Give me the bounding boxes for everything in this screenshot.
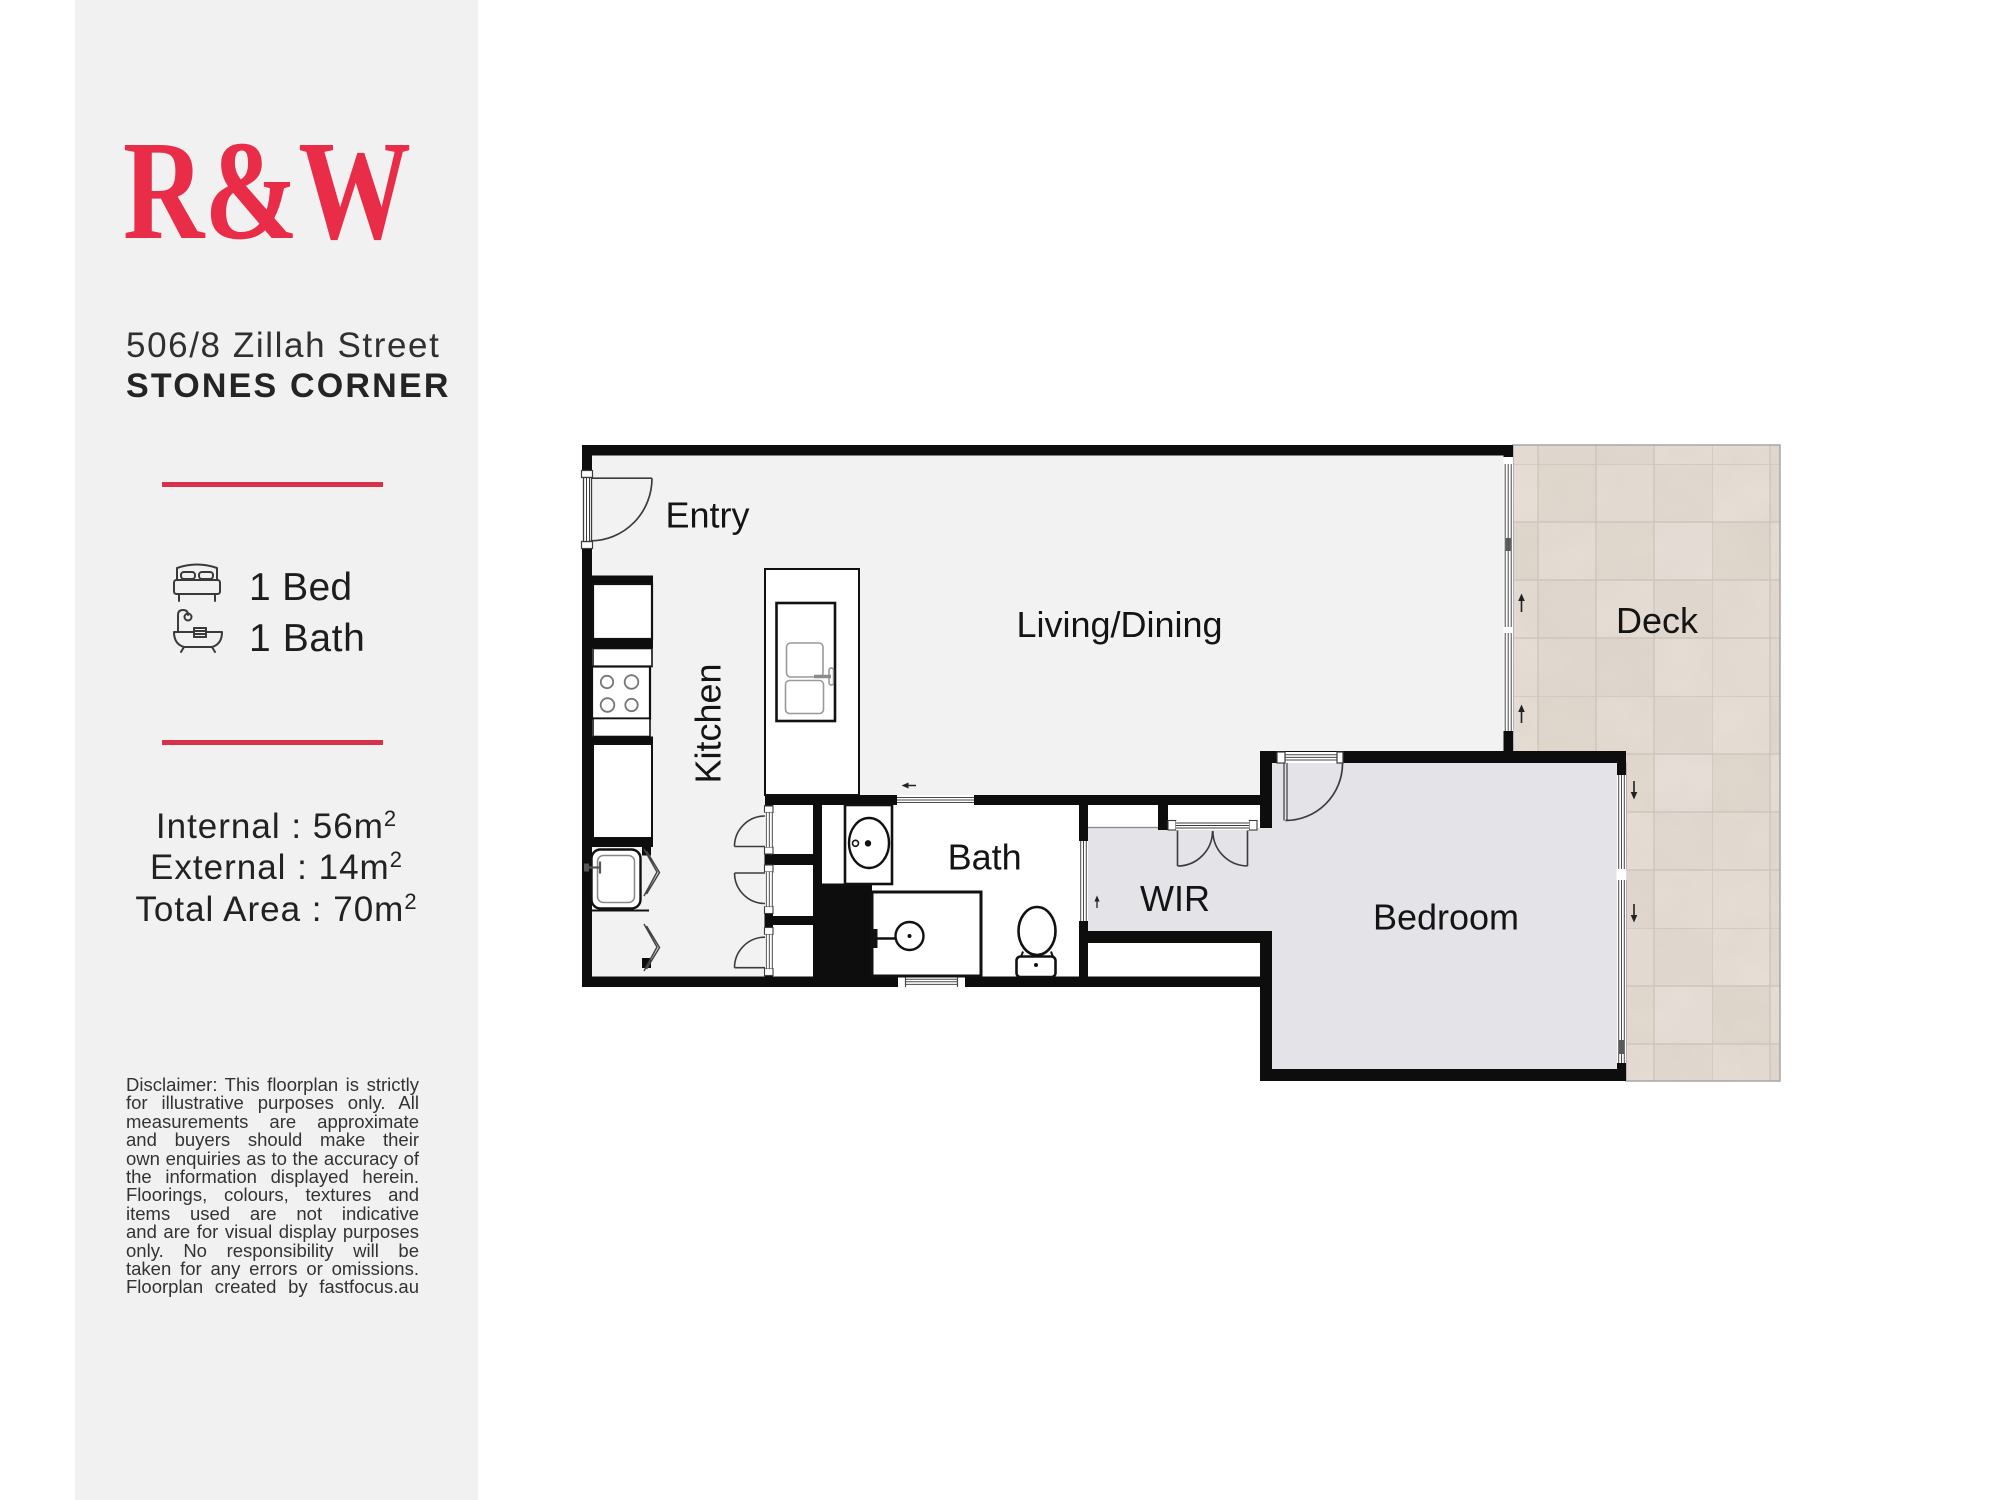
svg-text:Kitchen: Kitchen [688, 663, 729, 783]
svg-text:Deck: Deck [1616, 600, 1699, 641]
svg-text:Bath: Bath [948, 837, 1022, 878]
svg-text:Living/Dining: Living/Dining [1016, 604, 1222, 645]
svg-text:Bedroom: Bedroom [1373, 897, 1519, 938]
svg-text:WIR: WIR [1140, 878, 1210, 919]
svg-text:Entry: Entry [665, 495, 749, 536]
